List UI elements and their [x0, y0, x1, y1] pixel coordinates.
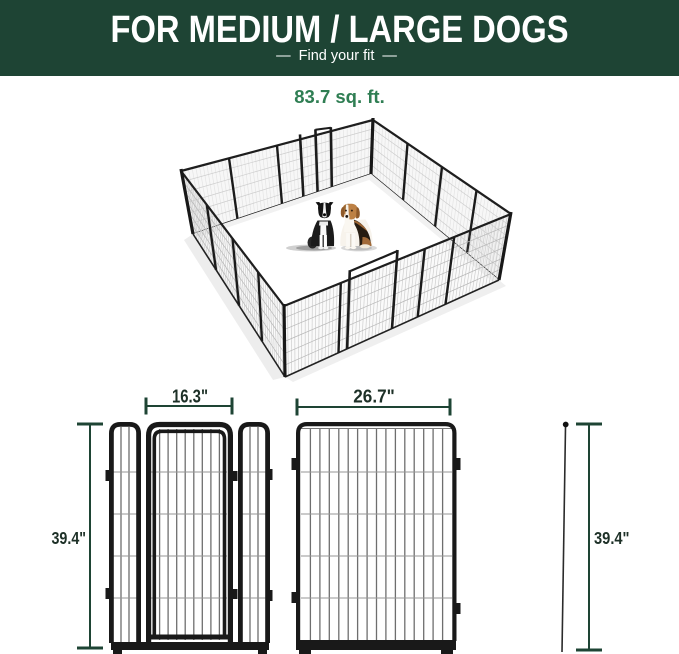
svg-text:39.4": 39.4": [594, 528, 630, 548]
svg-text:16.3": 16.3": [172, 386, 208, 407]
svg-text:39.4": 39.4": [52, 528, 87, 548]
svg-text:26.7": 26.7": [353, 386, 395, 407]
